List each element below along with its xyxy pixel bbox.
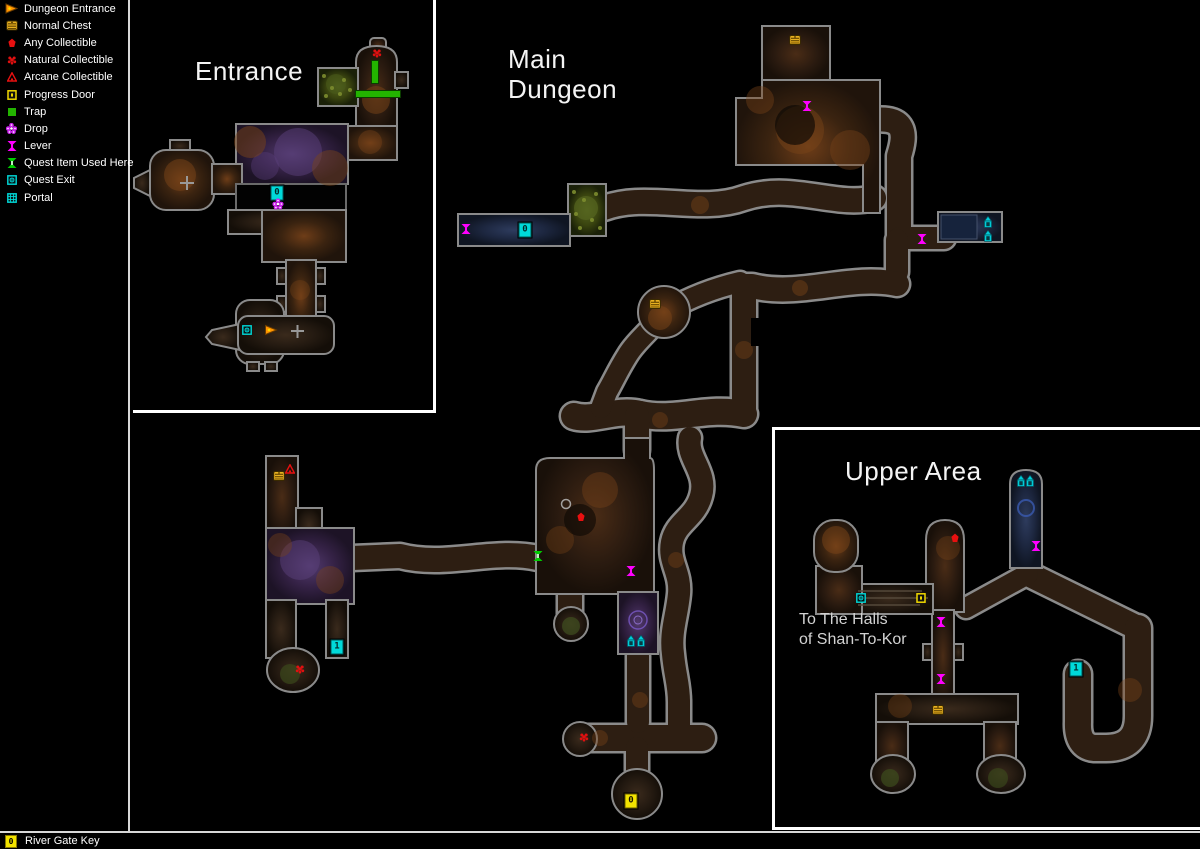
quest-exit-icon bbox=[242, 325, 252, 335]
trap-icon bbox=[372, 61, 378, 83]
lever-icon bbox=[461, 224, 471, 234]
arcane-icon bbox=[285, 464, 295, 474]
natural-icon bbox=[579, 732, 589, 742]
lever-icon bbox=[936, 674, 946, 684]
quest-item-icon bbox=[533, 551, 543, 561]
chest-icon bbox=[273, 471, 285, 482]
dungeon-map-viewer: Dungeon Entrance Normal Chest Any Collec… bbox=[0, 0, 1200, 849]
portal-num-icon: 1 bbox=[331, 640, 344, 655]
arch-icon bbox=[637, 635, 646, 647]
map-markers-layer: 00101 bbox=[0, 0, 1200, 849]
natural-icon bbox=[295, 664, 305, 674]
arch-icon bbox=[627, 635, 636, 647]
drop-icon bbox=[273, 199, 284, 210]
any-icon bbox=[950, 533, 960, 543]
chest-icon bbox=[649, 299, 661, 310]
lever-icon bbox=[626, 566, 636, 576]
chest-icon bbox=[932, 705, 944, 716]
portal-num-icon: 1 bbox=[1070, 662, 1083, 677]
arch-icon bbox=[984, 216, 993, 228]
key-num-icon: 0 bbox=[625, 794, 638, 809]
natural-icon bbox=[372, 48, 382, 58]
lever-icon bbox=[917, 234, 927, 244]
chest-icon bbox=[789, 35, 801, 46]
progress-door-icon bbox=[916, 593, 926, 603]
lever-icon bbox=[1031, 541, 1041, 551]
arch-icon bbox=[984, 230, 993, 242]
quest-exit-icon bbox=[856, 593, 866, 603]
any-icon bbox=[576, 512, 586, 522]
arch-icon bbox=[1017, 475, 1026, 487]
arch-icon bbox=[1026, 475, 1035, 487]
lever-icon bbox=[802, 101, 812, 111]
trap-icon bbox=[356, 91, 400, 97]
entrance-icon bbox=[265, 325, 278, 336]
portal-num-icon: 0 bbox=[519, 223, 532, 238]
lever-icon bbox=[936, 617, 946, 627]
